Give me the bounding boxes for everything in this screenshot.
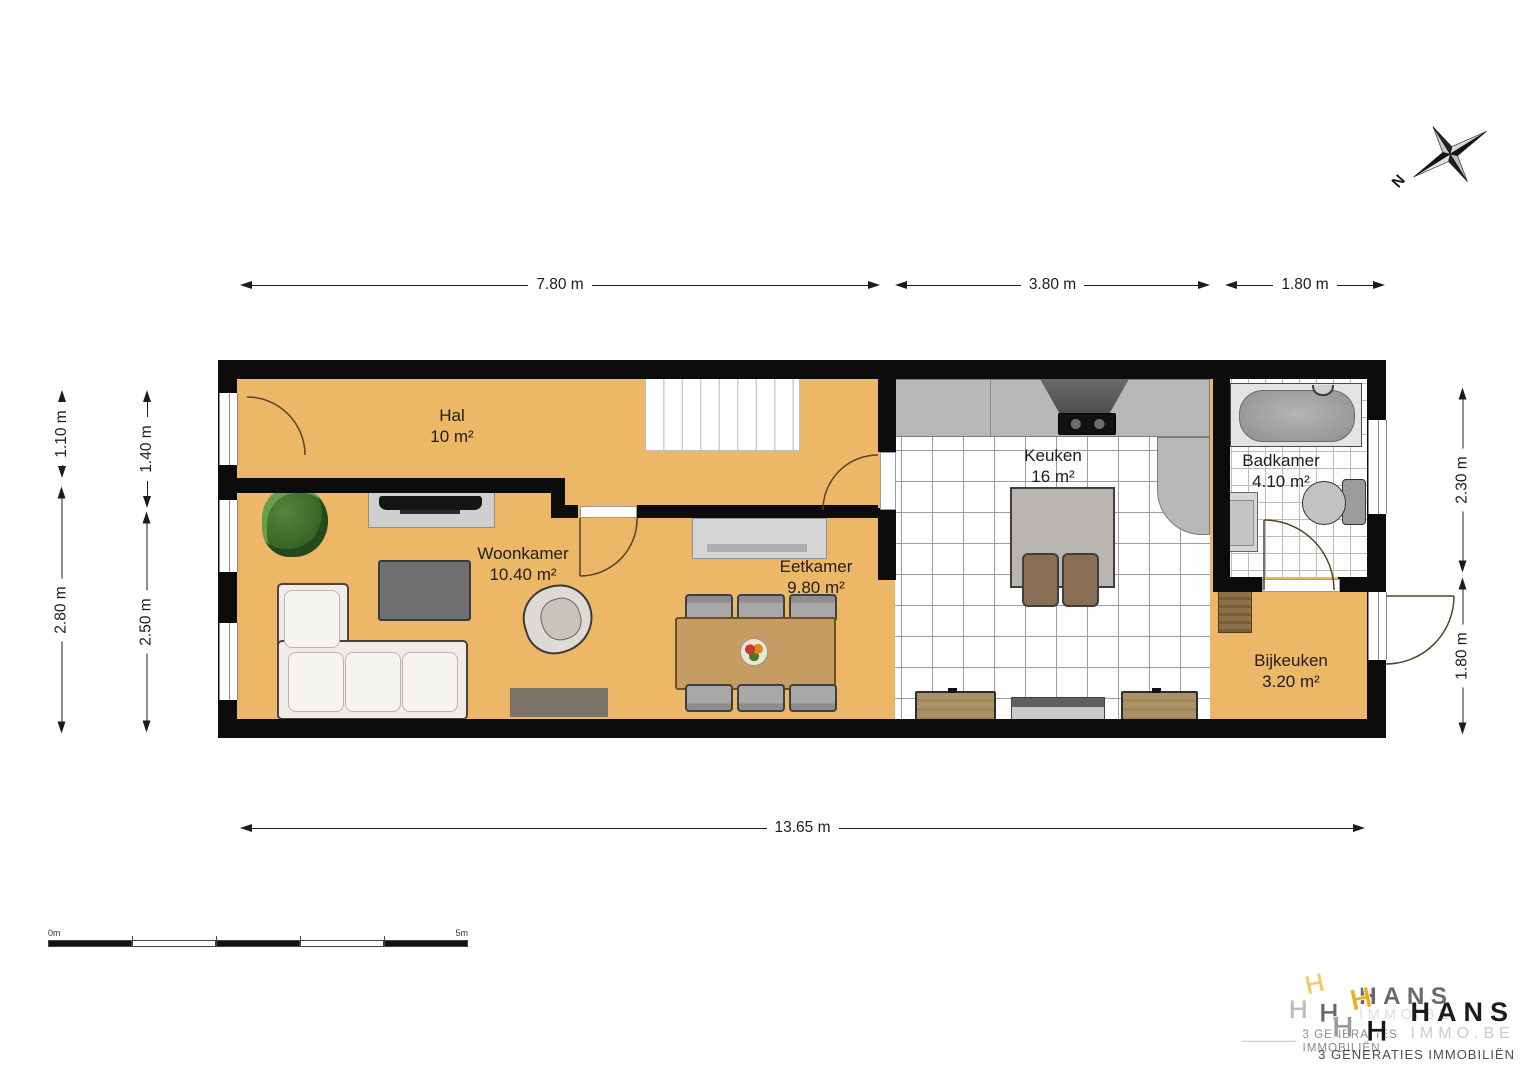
logo-h-blocks-icon: H H H xyxy=(1330,983,1406,1043)
room-name: Badkamer xyxy=(1211,450,1351,471)
scale-bar: 0m 5m xyxy=(48,940,468,947)
dim-left-inner-2: 2.50 m xyxy=(136,512,158,733)
room-area: 10 m² xyxy=(382,426,522,447)
scale-segment xyxy=(216,940,300,947)
scale-segment xyxy=(132,940,216,947)
dim-label: 2.50 m xyxy=(138,590,156,653)
room-area: 9.80 m² xyxy=(736,577,896,598)
dim-label: 13.65 m xyxy=(767,819,839,837)
room-name: Hal xyxy=(382,405,522,426)
dim-label: 2.30 m xyxy=(1454,448,1472,511)
logo-brand-text: HANS xyxy=(1410,999,1515,1025)
keuken-door-arc xyxy=(823,455,878,510)
dim-left-inner-1: 1.40 m xyxy=(136,390,158,508)
logo-tagline: 3 GENERATIES IMMOBILIËN xyxy=(1318,1047,1515,1062)
room-name: Bijkeuken xyxy=(1211,650,1371,671)
svg-text:H: H xyxy=(1289,994,1309,1023)
dim-label: 1.80 m xyxy=(1454,624,1472,687)
dim-label: 2.80 m xyxy=(53,578,71,641)
room-label-hal: Hal 10 m² xyxy=(382,405,522,447)
scale-segment xyxy=(384,940,468,947)
dim-top-2: 3.80 m xyxy=(895,274,1210,296)
room-area: 4.10 m² xyxy=(1211,471,1351,492)
logo-domain-text: IMMO.BE xyxy=(1410,1025,1514,1043)
dim-label: 1.80 m xyxy=(1273,276,1336,294)
room-name: Woonkamer xyxy=(443,543,603,564)
room-label-badkamer: Badkamer 4.10 m² xyxy=(1211,450,1351,492)
badkamer-door-arc xyxy=(1264,520,1334,590)
room-name: Eetkamer xyxy=(736,556,896,577)
dim-top-3: 1.80 m xyxy=(1225,274,1385,296)
agency-logo-main: H H H HANS IMMO.BE 3 GENERATIES IMMOBILI… xyxy=(1318,983,1515,1062)
door-swing-arcs xyxy=(0,0,1527,1080)
compass-north-arrow: N xyxy=(1385,100,1500,212)
dim-label: 1.40 m xyxy=(138,417,156,480)
dim-label: 7.80 m xyxy=(528,276,591,294)
floorplan-page: Hal 10 m² Woonkamer 10.40 m² Eetkamer 9.… xyxy=(0,0,1527,1080)
room-label-keuken: Keuken 16 m² xyxy=(983,445,1123,487)
bijkeuken-door-arc xyxy=(1386,596,1454,664)
dim-right-2: 1.80 m xyxy=(1452,578,1474,735)
dim-bottom: 13.65 m xyxy=(240,817,1365,839)
agency-logo: H H H HANS IMMO.BE 3 GENERATIES IMMOBILI… xyxy=(1230,965,1520,1075)
room-area: 10.40 m² xyxy=(443,564,603,585)
dim-left-outer-1: 1.10 m xyxy=(51,390,73,478)
dim-left-outer-2: 2.80 m xyxy=(51,487,73,734)
svg-text:H: H xyxy=(1332,1011,1354,1043)
scale-start-label: 0m xyxy=(48,928,61,938)
room-name: Keuken xyxy=(983,445,1123,466)
room-area: 16 m² xyxy=(983,466,1123,487)
room-label-eetkamer: Eetkamer 9.80 m² xyxy=(736,556,896,598)
compass-n-label: N xyxy=(1389,172,1409,192)
scale-end-label: 5m xyxy=(455,928,468,938)
dim-label: 3.80 m xyxy=(1021,276,1084,294)
room-area: 3.20 m² xyxy=(1211,671,1371,692)
svg-text:H: H xyxy=(1366,1015,1388,1043)
room-label-woonkamer: Woonkamer 10.40 m² xyxy=(443,543,603,585)
scale-segment xyxy=(300,940,384,947)
front-door-arc xyxy=(247,397,305,455)
dim-top-1: 7.80 m xyxy=(240,274,880,296)
dim-right-1: 2.30 m xyxy=(1452,388,1474,573)
room-label-bijkeuken: Bijkeuken 3.20 m² xyxy=(1211,650,1371,692)
dim-label: 1.10 m xyxy=(53,402,71,465)
scale-segment xyxy=(48,940,132,947)
